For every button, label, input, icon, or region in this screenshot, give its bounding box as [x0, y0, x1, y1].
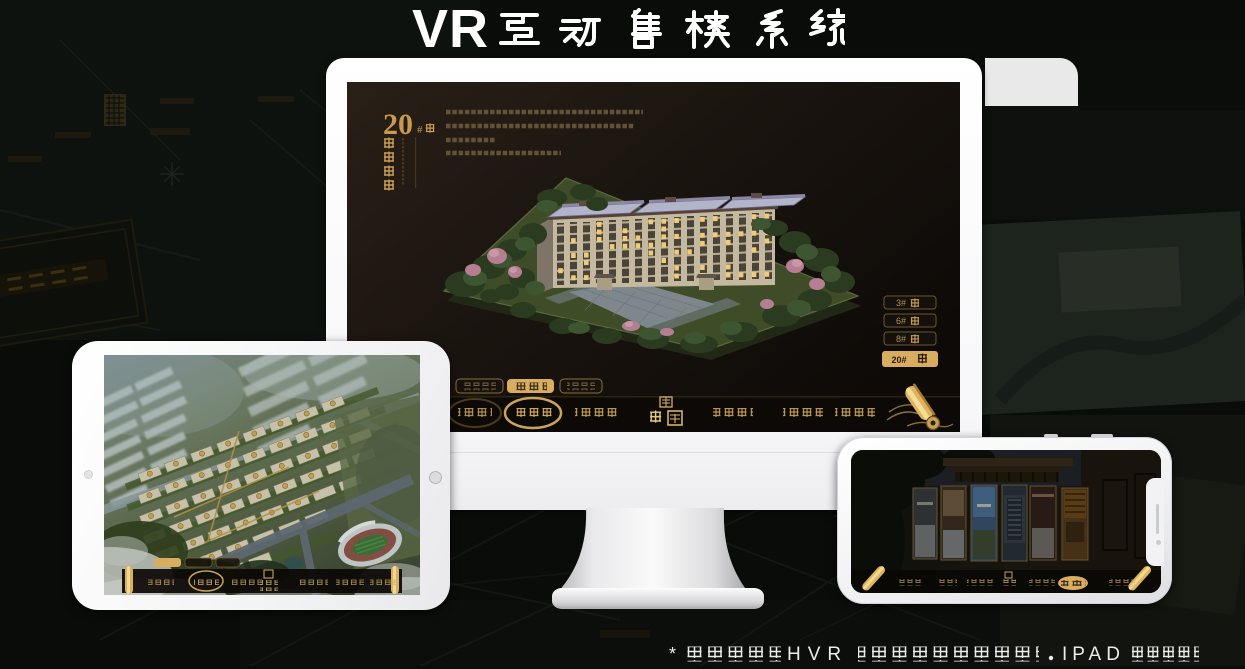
svg-text:8#: 8#	[896, 334, 906, 344]
svg-text:*: *	[669, 644, 676, 664]
svg-text:20: 20	[383, 108, 413, 141]
svg-text:IPAD: IPAD	[1062, 644, 1125, 664]
svg-text:3#: 3#	[896, 298, 906, 308]
svg-text:6#: 6#	[896, 316, 906, 326]
svg-text:20#: 20#	[891, 355, 906, 365]
svg-text:HVR: HVR	[787, 644, 848, 664]
svg-text:#: #	[417, 124, 423, 136]
